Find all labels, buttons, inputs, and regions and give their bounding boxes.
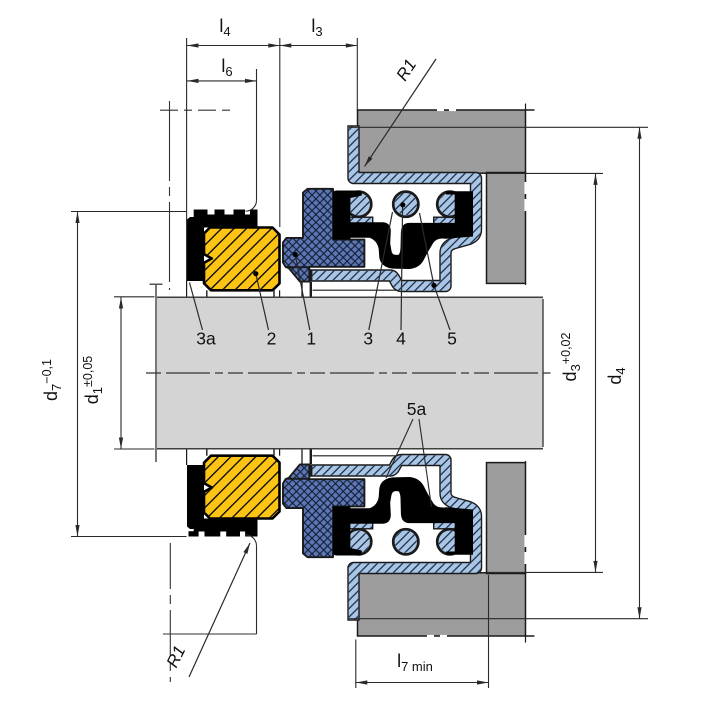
svg-text:5: 5 bbox=[447, 329, 457, 349]
svg-text:5a: 5a bbox=[407, 399, 427, 419]
svg-text:3: 3 bbox=[363, 329, 373, 349]
svg-text:1: 1 bbox=[306, 329, 316, 349]
svg-text:2: 2 bbox=[267, 329, 277, 349]
svg-text:3a: 3a bbox=[196, 329, 216, 349]
svg-text:4: 4 bbox=[396, 329, 406, 349]
